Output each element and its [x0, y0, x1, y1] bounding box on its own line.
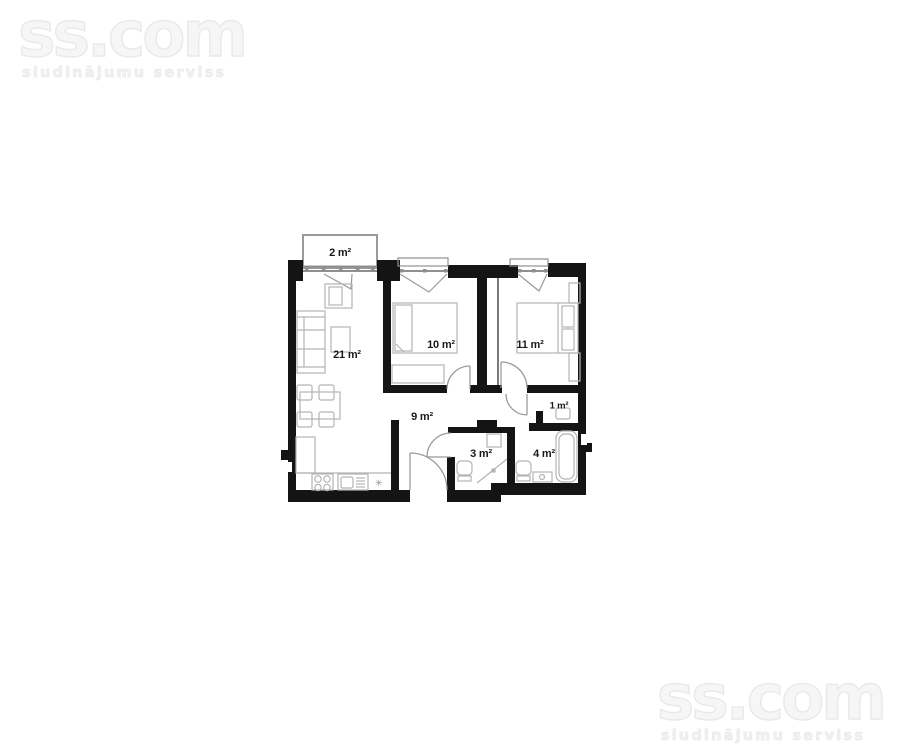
floor-plan: ✳	[0, 0, 910, 756]
room-label-balcony: 2 m²	[329, 247, 351, 259]
walls	[281, 260, 592, 502]
room-label-living-room: 21 m²	[333, 349, 361, 361]
room-label-bedroom-1: 10 m²	[427, 339, 455, 351]
bedroom-1-door	[447, 366, 470, 389]
corner-shower	[477, 459, 507, 483]
entrance-door	[410, 453, 447, 490]
room-label-bedroom-2: 11 m²	[516, 339, 543, 351]
stove	[312, 474, 333, 491]
vent-icon: ✳	[375, 478, 383, 488]
bathtub	[556, 431, 577, 482]
sofa	[297, 311, 325, 373]
closet-door	[506, 394, 527, 415]
room-label-closet: 1 m²	[550, 401, 569, 412]
room-label-bathroom: 4 m²	[533, 448, 555, 460]
bedroom-2-door	[501, 362, 527, 388]
room-label-hallway: 9 m²	[411, 411, 433, 423]
kitchen-counter	[296, 437, 391, 473]
wc-toilet	[457, 461, 472, 481]
washing-machine	[533, 472, 552, 482]
wc-door	[427, 433, 451, 457]
bathroom-toilet	[516, 461, 531, 481]
room-label-wc: 3 m²	[470, 448, 492, 460]
kitchen-sink	[338, 474, 368, 490]
wc-sink	[487, 434, 501, 447]
page: ss.com sludinājumu serviss ss.com sludin…	[0, 0, 910, 756]
dining-set	[297, 385, 340, 427]
dresser	[392, 365, 444, 383]
